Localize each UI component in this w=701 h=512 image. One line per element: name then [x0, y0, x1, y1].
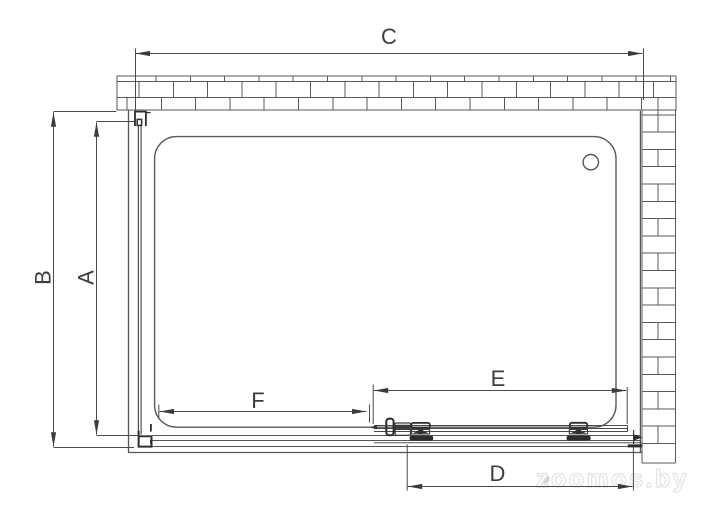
svg-text:D: D [490, 461, 506, 486]
svg-text:C: C [381, 24, 397, 49]
svg-text:zoomos.by: zoomos.by [536, 465, 688, 493]
svg-text:B: B [31, 270, 56, 285]
svg-text:E: E [491, 366, 506, 391]
svg-text:F: F [251, 388, 264, 413]
svg-text:A: A [74, 270, 99, 285]
